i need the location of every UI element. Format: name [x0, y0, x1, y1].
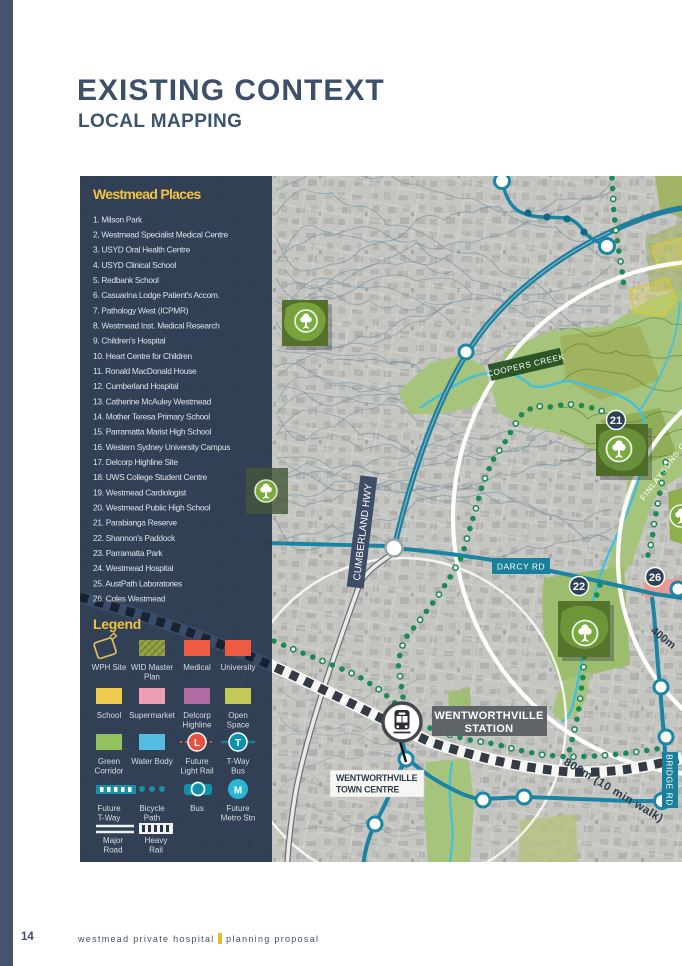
svg-text:4. USYD Clinical School: 4. USYD Clinical School — [93, 260, 176, 270]
svg-text:Light Rail: Light Rail — [180, 766, 214, 775]
svg-text:3. USYD Oral Health Centre: 3. USYD Oral Health Centre — [93, 245, 191, 255]
svg-text:2. Westmead Specialist Medical: 2. Westmead Specialist Medical Centre — [93, 230, 229, 240]
svg-text:Bicycle: Bicycle — [139, 804, 165, 813]
svg-text:20. Westmead Public High Schoo: 20. Westmead Public High School — [93, 503, 211, 513]
svg-text:Future: Future — [185, 757, 209, 766]
svg-text:Major: Major — [103, 836, 123, 845]
svg-text:25. AustPath Laboratories: 25. AustPath Laboratories — [93, 578, 182, 588]
svg-text:WENTWORTHVILLE: WENTWORTHVILLE — [434, 710, 543, 722]
svg-text:14. Mother Teresa Primary Scho: 14. Mother Teresa Primary School — [93, 412, 210, 422]
svg-text:16. Western Sydney University: 16. Western Sydney University Campus — [93, 442, 230, 452]
svg-text:Delcorp: Delcorp — [183, 711, 211, 720]
svg-text:Green: Green — [98, 757, 120, 766]
svg-text:Legend: Legend — [93, 616, 141, 632]
svg-text:M: M — [234, 786, 242, 797]
svg-text:Road: Road — [103, 845, 122, 854]
svg-text:26. Coles Westmead: 26. Coles Westmead — [93, 594, 166, 604]
svg-text:DARCY RD: DARCY RD — [497, 562, 545, 572]
svg-text:Plan: Plan — [144, 672, 160, 681]
svg-text:BRIDGE RD: BRIDGE RD — [665, 754, 675, 806]
svg-text:STATION: STATION — [465, 723, 514, 735]
svg-text:Open: Open — [228, 711, 248, 720]
svg-text:Metro Stn: Metro Stn — [221, 813, 256, 822]
svg-text:Highline: Highline — [183, 720, 212, 729]
svg-text:19. Westmead Cardiologist: 19. Westmead Cardiologist — [93, 487, 187, 497]
svg-text:L: L — [194, 738, 200, 749]
svg-text:15. Parramatta Marist High Sch: 15. Parramatta Marist High School — [93, 427, 212, 437]
svg-text:22. Shannon's Paddock: 22. Shannon's Paddock — [93, 533, 176, 543]
svg-text:21: 21 — [610, 415, 622, 427]
svg-text:17. Delcorp Highline Site: 17. Delcorp Highline Site — [93, 457, 178, 467]
svg-text:Path: Path — [144, 813, 160, 822]
svg-text:Future: Future — [226, 804, 250, 813]
svg-text:18. UWS College Student Centre: 18. UWS College Student Centre — [93, 472, 208, 482]
svg-text:T: T — [235, 738, 241, 749]
svg-text:Rail: Rail — [149, 845, 163, 854]
svg-text:WID Master: WID Master — [131, 663, 174, 672]
svg-text:6. Casuarina Lodge Patient's A: 6. Casuarina Lodge Patient's Accom. — [93, 290, 220, 300]
svg-text:23. Parramatta Park: 23. Parramatta Park — [93, 548, 163, 558]
svg-text:Bus: Bus — [190, 804, 204, 813]
svg-text:24. Westmead Hospital: 24. Westmead Hospital — [93, 563, 174, 573]
svg-text:7. Pathology West (ICPMR): 7. Pathology West (ICPMR) — [93, 305, 189, 315]
svg-text:1. Milson Park: 1. Milson Park — [93, 214, 143, 224]
svg-text:13. Catherine McAuley Westmead: 13. Catherine McAuley Westmead — [93, 396, 212, 406]
svg-text:11. Ronald MacDonald House: 11. Ronald MacDonald House — [93, 366, 197, 376]
svg-text:Space: Space — [227, 720, 250, 729]
svg-text:26: 26 — [649, 572, 661, 584]
svg-text:T-Way: T-Way — [227, 757, 250, 766]
svg-text:12. Cumberland Hospital: 12. Cumberland Hospital — [93, 381, 179, 391]
svg-text:5. Redbank School: 5. Redbank School — [93, 275, 159, 285]
svg-text:22: 22 — [573, 581, 585, 593]
svg-text:Heavy: Heavy — [145, 836, 168, 845]
svg-text:School: School — [97, 711, 122, 720]
svg-text:21. Parabianga Reserve: 21. Parabianga Reserve — [93, 518, 177, 528]
svg-text:Future: Future — [97, 804, 121, 813]
svg-text:Westmead Places: Westmead Places — [93, 186, 201, 202]
svg-text:University: University — [220, 663, 255, 672]
svg-text:WPH Site: WPH Site — [92, 663, 127, 672]
svg-text:Corridor: Corridor — [95, 766, 124, 775]
svg-text:Supermarket: Supermarket — [129, 711, 176, 720]
svg-text:8. Westmead Inst. Medical Rese: 8. Westmead Inst. Medical Research — [93, 321, 220, 331]
svg-text:10. Heart Centre for Children: 10. Heart Centre for Children — [93, 351, 192, 361]
svg-text:Water Body: Water Body — [131, 757, 173, 766]
svg-text:T-Way: T-Way — [98, 813, 121, 822]
svg-text:TOWN CENTRE: TOWN CENTRE — [336, 785, 399, 795]
svg-text:Medical: Medical — [183, 663, 211, 672]
svg-text:Bus: Bus — [231, 766, 245, 775]
svg-text:9. Children's Hospital: 9. Children's Hospital — [93, 336, 166, 346]
svg-text:WENTWORTHVILLE: WENTWORTHVILLE — [336, 773, 418, 783]
